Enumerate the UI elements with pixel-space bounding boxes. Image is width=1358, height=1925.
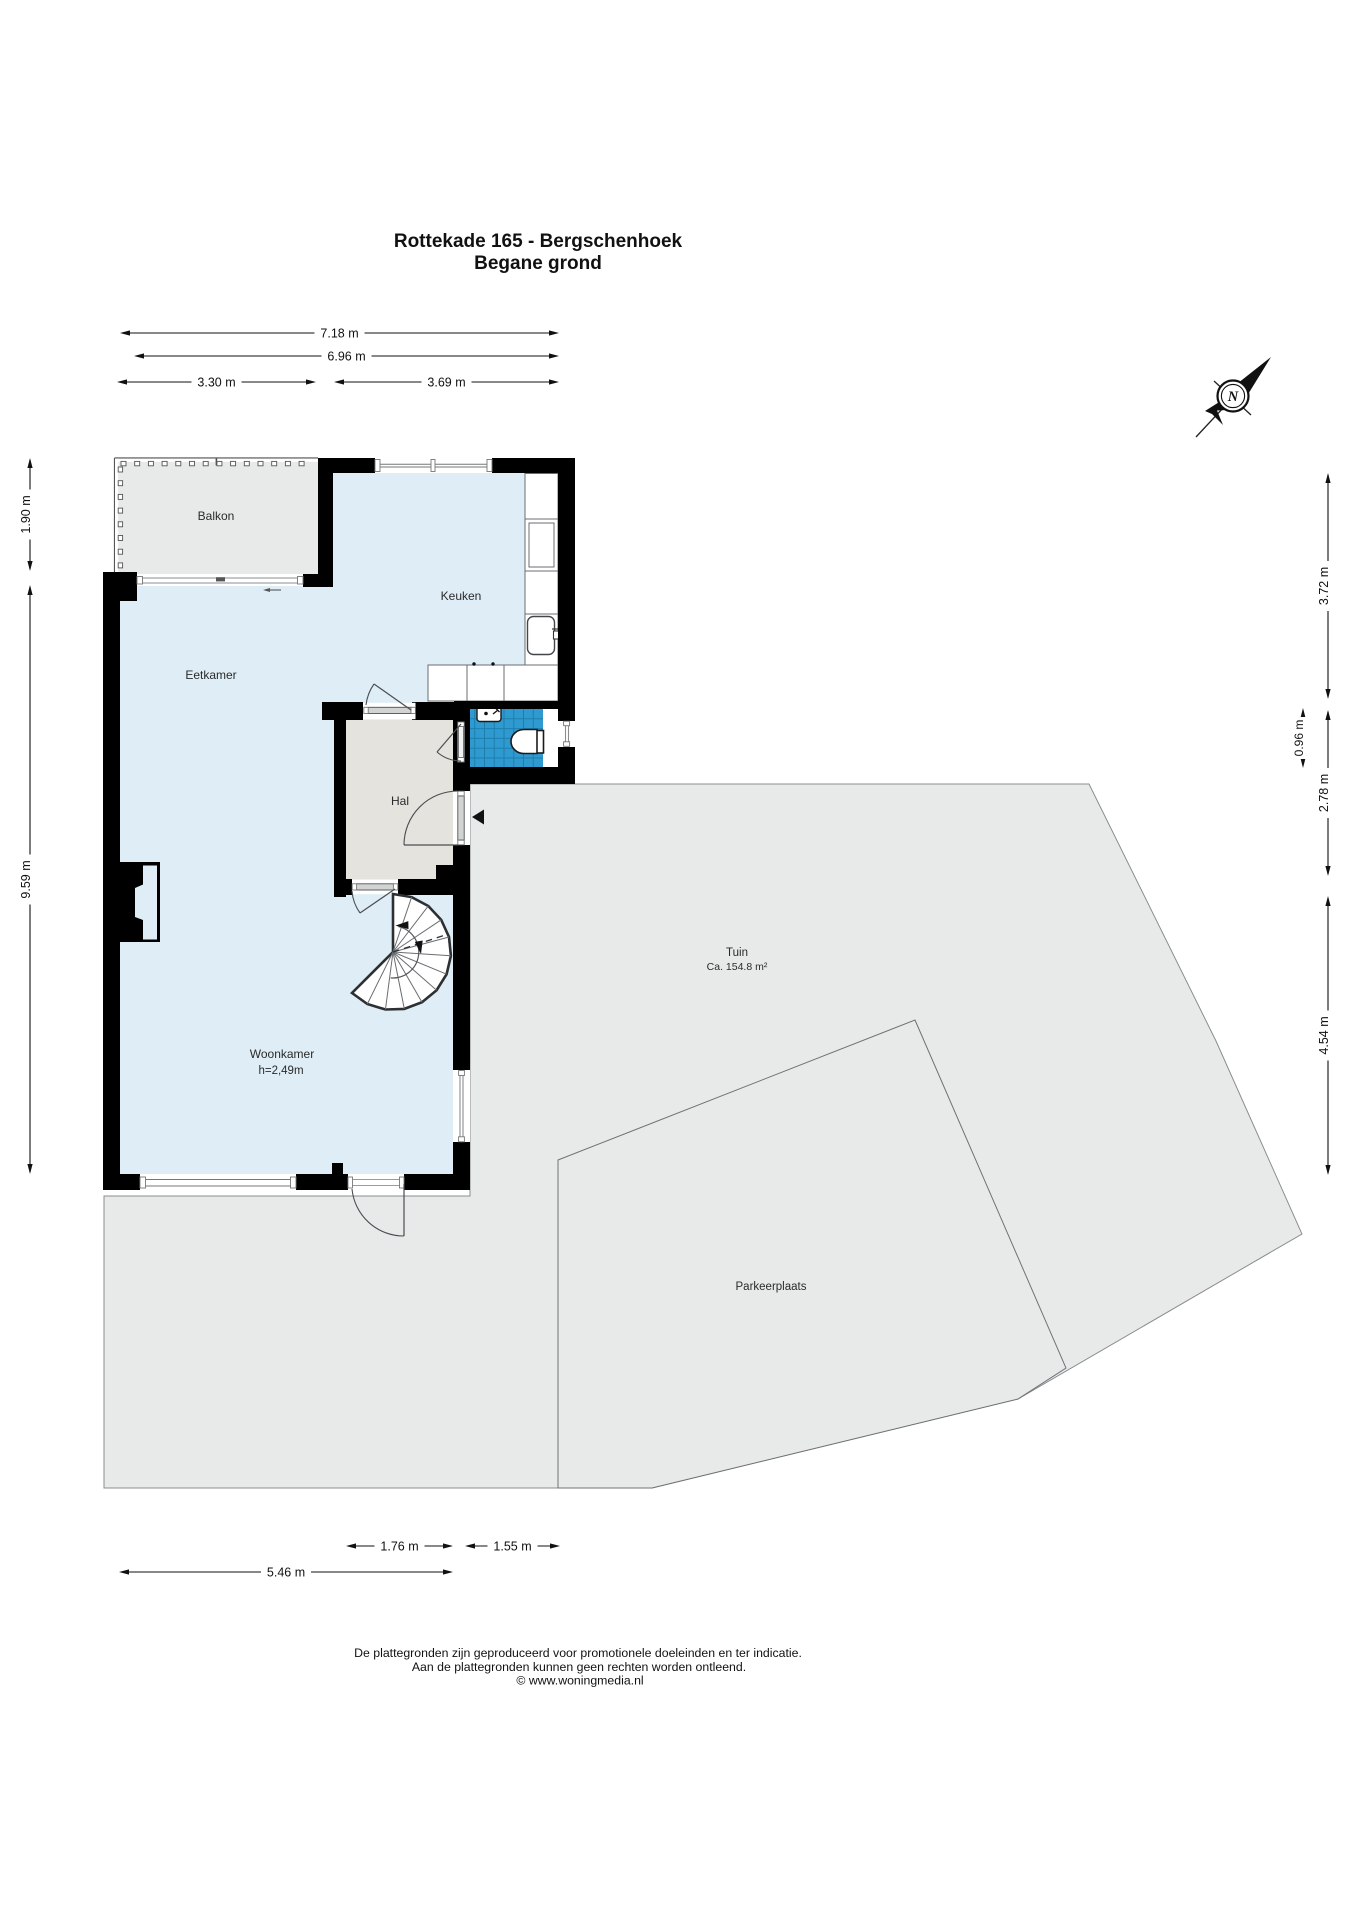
svg-text:De plattegronden zijn geproduc: De plattegronden zijn geproduceerd voor …	[354, 1646, 802, 1660]
svg-text:Rottekade 165 - Bergschenhoek: Rottekade 165 - Bergschenhoek	[394, 231, 683, 252]
svg-text:3.30 m: 3.30 m	[197, 375, 235, 389]
svg-text:Hal: Hal	[391, 794, 409, 808]
svg-text:6.96 m: 6.96 m	[327, 349, 365, 363]
svg-text:Keuken: Keuken	[441, 589, 482, 603]
svg-text:4.54 m: 4.54 m	[1317, 1016, 1331, 1054]
svg-text:N: N	[1227, 389, 1239, 405]
svg-text:7.18 m: 7.18 m	[320, 326, 358, 340]
svg-text:1.90 m: 1.90 m	[19, 495, 33, 533]
svg-text:Woonkamer: Woonkamer	[250, 1047, 314, 1061]
svg-text:Aan de plattegronden kunnen ge: Aan de plattegronden kunnen geen rechten…	[412, 1660, 746, 1674]
svg-text:3.69 m: 3.69 m	[427, 375, 465, 389]
svg-text:Tuin: Tuin	[726, 947, 748, 959]
svg-text:9.59 m: 9.59 m	[19, 860, 33, 898]
svg-text:Eetkamer: Eetkamer	[185, 668, 236, 682]
svg-text:Begane grond: Begane grond	[474, 253, 602, 274]
svg-text:0.96 m: 0.96 m	[1292, 720, 1306, 757]
svg-text:Parkeerplaats: Parkeerplaats	[736, 1281, 807, 1293]
svg-text:Ca. 154.8 m²: Ca. 154.8 m²	[707, 961, 768, 973]
svg-text:1.55 m: 1.55 m	[493, 1539, 531, 1553]
svg-text:2.78 m: 2.78 m	[1317, 774, 1331, 812]
svg-text:© www.woningmedia.nl: © www.woningmedia.nl	[516, 1674, 643, 1688]
svg-text:3.72 m: 3.72 m	[1317, 567, 1331, 605]
svg-text:Balkon: Balkon	[198, 509, 235, 523]
svg-text:h=2,49m: h=2,49m	[258, 1065, 303, 1077]
svg-text:5.46 m: 5.46 m	[267, 1565, 305, 1579]
svg-text:1.76 m: 1.76 m	[380, 1539, 418, 1553]
